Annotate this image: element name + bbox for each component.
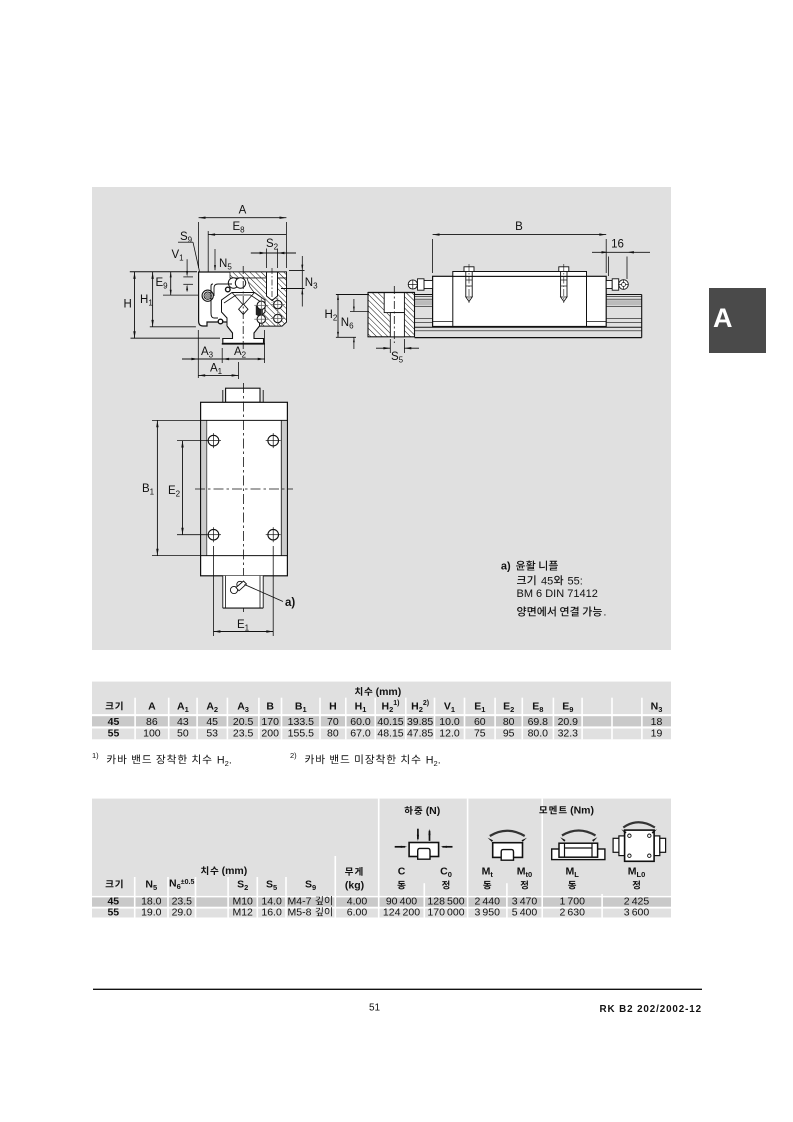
svg-text:90 400: 90 400 (386, 895, 417, 907)
svg-text:.: . (229, 754, 232, 766)
svg-text:16: 16 (611, 239, 624, 251)
svg-text:2): 2) (290, 751, 297, 760)
svg-text:A1: A1 (210, 363, 223, 377)
svg-text:170: 170 (261, 716, 279, 728)
svg-text:20.9: 20.9 (558, 716, 579, 728)
svg-text:B: B (515, 221, 523, 233)
svg-text:(mm): (mm) (222, 865, 248, 877)
svg-text:155.5: 155.5 (288, 727, 314, 739)
svg-text:3 950: 3 950 (474, 907, 500, 919)
svg-text:75: 75 (474, 727, 486, 739)
svg-text:M4-7: M4-7 (288, 895, 312, 907)
svg-text:69.8: 69.8 (528, 716, 549, 728)
svg-text:3 600: 3 600 (624, 907, 650, 919)
svg-text:H1: H1 (140, 294, 153, 308)
svg-text:1): 1) (92, 751, 99, 760)
svg-text:H: H (124, 299, 132, 311)
svg-text:45: 45 (108, 716, 120, 728)
svg-text:A2: A2 (234, 346, 247, 360)
svg-text:2 440: 2 440 (474, 895, 500, 907)
svg-text:A: A (239, 205, 247, 217)
svg-text:19: 19 (651, 727, 663, 739)
svg-text:23.5: 23.5 (172, 895, 193, 907)
svg-text:E2: E2 (168, 485, 181, 499)
svg-text:H2: H2 (217, 754, 229, 768)
svg-text:70: 70 (327, 716, 339, 728)
svg-text:53: 53 (206, 727, 218, 739)
svg-text:(kg): (kg) (345, 880, 364, 892)
svg-text:67.0: 67.0 (350, 727, 371, 739)
svg-text:51: 51 (369, 1003, 381, 1014)
svg-text:B: B (266, 701, 274, 713)
svg-text:(mm): (mm) (376, 686, 402, 698)
svg-text:S5: S5 (391, 351, 404, 365)
svg-text:16.0: 16.0 (261, 907, 282, 919)
svg-text:40.15: 40.15 (377, 716, 403, 728)
svg-text:N6: N6 (341, 317, 354, 331)
svg-text:E8: E8 (233, 221, 246, 235)
svg-text:29.0: 29.0 (172, 907, 193, 919)
svg-text:14.0: 14.0 (261, 895, 282, 907)
svg-text:80.0: 80.0 (528, 727, 549, 739)
svg-text:18: 18 (651, 716, 663, 728)
svg-text:.: . (603, 607, 606, 619)
svg-text:55:: 55: (568, 575, 583, 587)
svg-text:4.00: 4.00 (347, 895, 368, 907)
svg-text:128 500: 128 500 (427, 895, 464, 907)
svg-text:M12: M12 (232, 907, 253, 919)
svg-text:E1: E1 (237, 619, 250, 633)
svg-text:55: 55 (107, 907, 119, 919)
svg-text:45: 45 (206, 716, 218, 728)
svg-text:M5-8: M5-8 (288, 907, 312, 919)
svg-text:60: 60 (474, 716, 486, 728)
svg-text:B1: B1 (142, 483, 155, 497)
svg-text:10.0: 10.0 (439, 716, 460, 728)
svg-text:43: 43 (177, 716, 189, 728)
svg-text:80: 80 (327, 727, 339, 739)
svg-text:19.0: 19.0 (141, 907, 162, 919)
svg-text:N3: N3 (305, 277, 318, 291)
svg-text:N5: N5 (219, 258, 232, 272)
svg-text:60.0: 60.0 (350, 716, 371, 728)
svg-text:C: C (398, 866, 406, 878)
svg-text:1 700: 1 700 (559, 895, 585, 907)
svg-text:50: 50 (177, 727, 189, 739)
svg-text:6.00: 6.00 (347, 907, 368, 919)
svg-text:23.5: 23.5 (233, 727, 254, 739)
svg-text:124 200: 124 200 (383, 907, 420, 919)
svg-text:a): a) (501, 561, 511, 573)
svg-text:200: 200 (261, 727, 279, 739)
svg-text:3 470: 3 470 (512, 895, 538, 907)
svg-text:(Nm): (Nm) (570, 805, 594, 817)
svg-text:M10: M10 (232, 895, 253, 907)
svg-text:45: 45 (107, 895, 119, 907)
svg-text:S2: S2 (266, 238, 279, 252)
svg-text:45: 45 (541, 575, 553, 587)
svg-text:A3: A3 (201, 346, 214, 360)
svg-text:100: 100 (143, 727, 161, 739)
svg-text:48.15: 48.15 (377, 727, 403, 739)
svg-text:A: A (148, 701, 156, 713)
svg-text:12.0: 12.0 (439, 727, 460, 739)
svg-text:80: 80 (503, 716, 515, 728)
svg-text:H2: H2 (325, 309, 338, 323)
svg-text:39.85: 39.85 (407, 716, 433, 728)
svg-text:5 400: 5 400 (512, 907, 538, 919)
svg-text:(N): (N) (426, 805, 441, 817)
svg-text:E9: E9 (156, 277, 169, 291)
svg-text:H: H (329, 701, 337, 713)
svg-text:V1: V1 (172, 249, 185, 263)
svg-text:H2: H2 (426, 754, 438, 768)
svg-text:RK B2 202/2002-12: RK B2 202/2002-12 (600, 1004, 702, 1015)
svg-text:.: . (438, 754, 441, 766)
svg-text:86: 86 (146, 716, 158, 728)
svg-text:55: 55 (108, 727, 120, 739)
svg-text:32.3: 32.3 (558, 727, 579, 739)
svg-text:BM 6 DIN 71412: BM 6 DIN 71412 (517, 588, 598, 600)
svg-text:95: 95 (503, 727, 515, 739)
svg-text:47.85: 47.85 (407, 727, 433, 739)
svg-text:20.5: 20.5 (233, 716, 254, 728)
svg-text:170 000: 170 000 (427, 907, 464, 919)
svg-text:a): a) (285, 597, 295, 609)
svg-text:2 630: 2 630 (559, 907, 585, 919)
svg-text:133.5: 133.5 (288, 716, 314, 728)
svg-text:2 425: 2 425 (624, 895, 650, 907)
svg-text:18.0: 18.0 (141, 895, 162, 907)
